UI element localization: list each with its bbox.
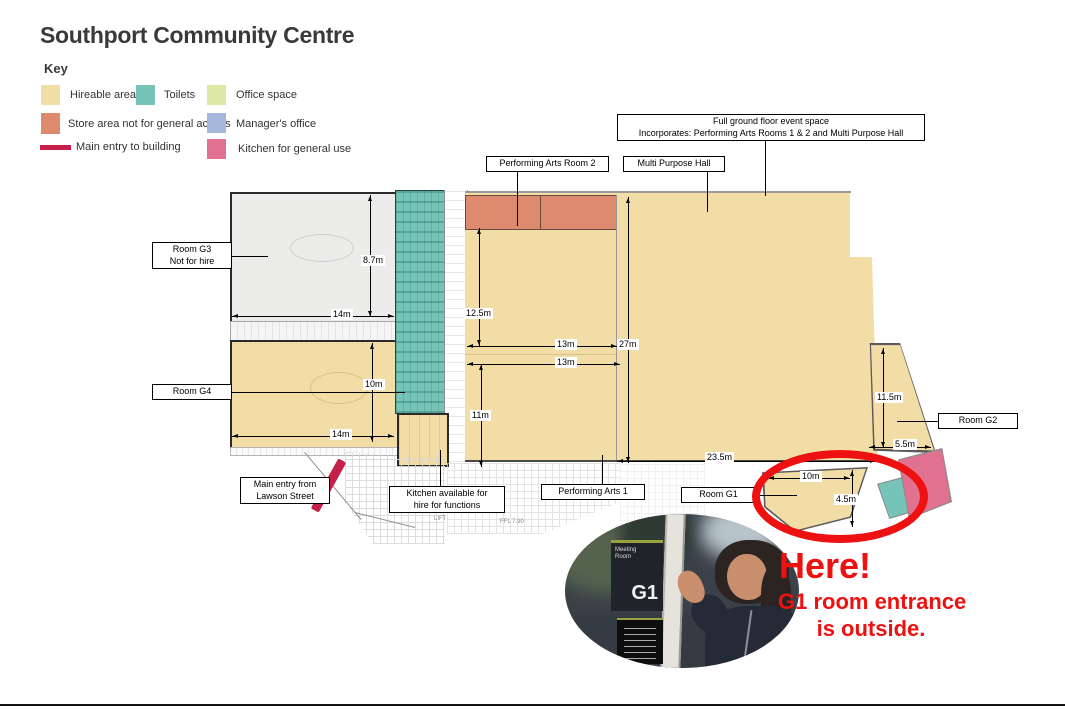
annotation-headline: Here! (779, 545, 871, 587)
toilets-area (395, 190, 445, 414)
legend-label-office: Office space (236, 89, 297, 101)
legend-label-kitchen: Kitchen for general use (238, 143, 351, 155)
label-room-g1: Room G1 (681, 487, 756, 503)
dim-pa2-width-bottom: 13m (555, 357, 577, 368)
photo-inset: Meeting Room G1 (565, 514, 799, 668)
page-title: Southport Community Centre (40, 22, 354, 49)
leader-room-g2 (897, 421, 938, 422)
legend-swatch-store (41, 113, 60, 134)
legend-label-toilets: Toilets (164, 89, 195, 101)
leader-pa-room-2 (517, 171, 518, 226)
door-sign-header: Meeting Room (615, 547, 636, 561)
dim-g3-width: 14m (331, 309, 353, 320)
label-room-g4: Room G4 (152, 384, 232, 400)
dim-arrow-g4-width (232, 436, 394, 437)
dim-g2-height: 11.5m (875, 392, 903, 403)
leader-pa-1 (602, 455, 603, 485)
dim-pa2-height: 12.5m (464, 308, 493, 319)
event-space-area (465, 193, 878, 462)
door-sign-g1: Meeting Room G1 (611, 540, 663, 611)
room-g4-area (230, 340, 400, 449)
legend-swatch-office (207, 85, 226, 105)
dim-arrow-pa2-height (479, 228, 480, 346)
leader-room-g4 (224, 392, 405, 393)
door-sign-room: G1 (631, 582, 658, 605)
label-multi-purpose-hall: Multi Purpose Hall (623, 156, 725, 172)
label-room-g3: Room G3 Not for hire (152, 242, 232, 269)
annotation-line2: is outside. (778, 616, 964, 642)
store-area-1 (465, 195, 541, 230)
g3-plan-cloud (290, 234, 354, 262)
legend-swatch-toilets (136, 85, 155, 105)
store-area-2 (540, 195, 617, 230)
hall-boundary-line (616, 195, 617, 460)
leader-full-event-space (765, 139, 766, 196)
dim-arrow-pa2-width-top (467, 346, 617, 347)
dim-g4-width: 14m (330, 429, 352, 440)
dim-pa1-height: 11m (470, 410, 491, 421)
legend-swatch-hireable (41, 85, 60, 105)
dim-g4-height: 10m (363, 379, 385, 390)
dim-hall-width: 23.5m (705, 452, 734, 463)
lift-text: LIFT (434, 516, 446, 522)
legend-entry-bar (40, 145, 71, 150)
pa2-pa1-boundary (465, 354, 616, 355)
leader-multi-purpose-hall (707, 171, 708, 212)
g4-plan-cloud (310, 372, 368, 404)
dim-arrow-hall-height (628, 197, 629, 463)
label-pa-1: Performing Arts 1 (541, 484, 645, 500)
dim-pa2-width-top: 13m (555, 339, 577, 350)
leader-kitchen (440, 450, 441, 486)
key-heading: Key (44, 61, 68, 76)
event-space-top-edge (465, 191, 851, 193)
label-kitchen: Kitchen available for hire for functions (389, 486, 505, 513)
label-pa-room-2: Performing Arts Room 2 (486, 156, 609, 172)
dim-arrow-g3-width (232, 316, 394, 317)
legend-label-hireable: Hireable area (70, 89, 136, 101)
dim-hall-height: 27m (617, 339, 639, 350)
legend-swatch-manager (207, 113, 226, 133)
label-main-entry: Main entry from Lawson Street (240, 477, 330, 504)
ffl-text: FFL 7.90 (500, 519, 524, 525)
door-notice-sign (617, 618, 663, 664)
bottom-border-line (0, 704, 1065, 706)
page: Southport Community Centre Key Hireable … (0, 0, 1065, 711)
dim-arrow-pa2-width-bottom (467, 364, 620, 365)
label-full-event-space: Full ground floor event space Incorporat… (617, 114, 925, 141)
dim-g3-height: 8.7m (361, 255, 385, 266)
g3-g4-corridor (230, 321, 398, 341)
legend-label-manager: Manager's office (236, 118, 316, 130)
legend-label-entry: Main entry to building (76, 141, 181, 153)
dim-g2-width: 5.5m (893, 439, 917, 450)
label-room-g2: Room G2 (938, 413, 1018, 429)
legend-swatch-kitchen (207, 139, 226, 159)
annotation-line1: G1 room entrance (778, 589, 966, 615)
